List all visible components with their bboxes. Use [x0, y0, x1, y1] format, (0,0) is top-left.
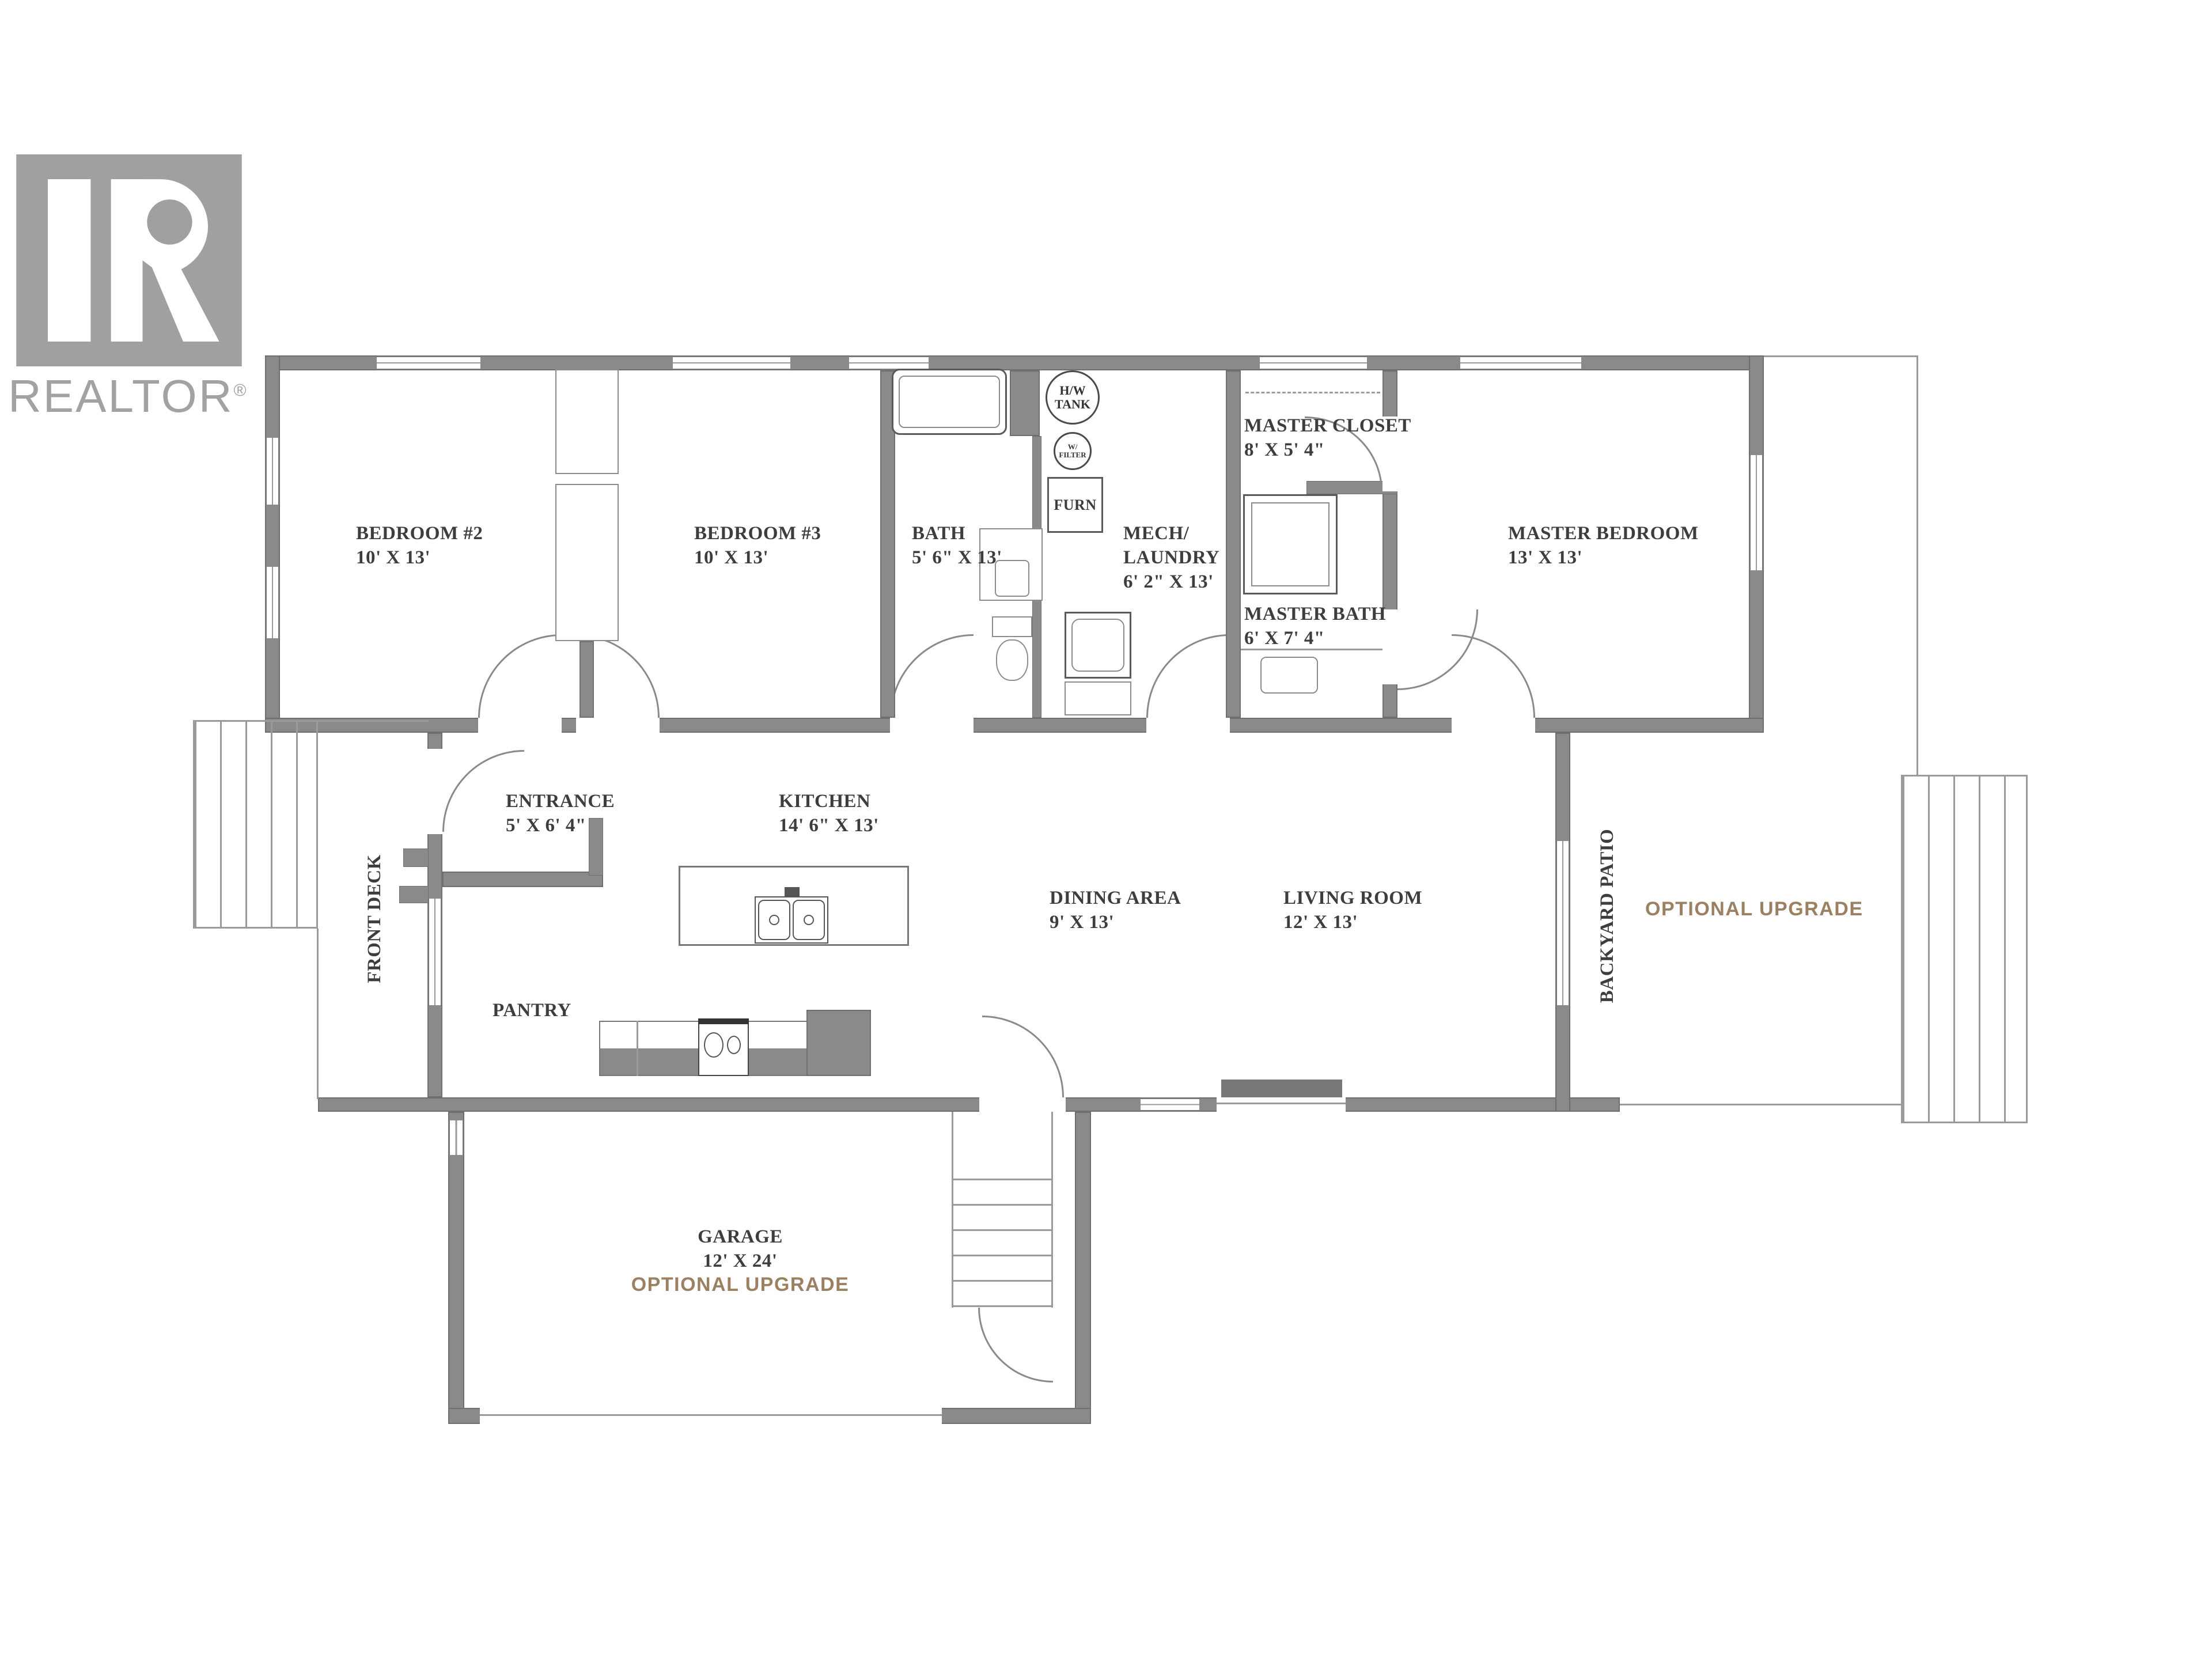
living-dims: 12' X 13': [1283, 910, 1422, 934]
garage-door-gap: [480, 1408, 942, 1424]
wall-garage-right: [1075, 1112, 1091, 1424]
mech-name2: LAUNDRY: [1123, 546, 1219, 570]
door-gap-entrance: [427, 749, 442, 834]
patio-roofline-top: [1764, 355, 1918, 357]
entrance-name: ENTRANCE: [506, 789, 615, 813]
sink-drain-left: [769, 915, 779, 925]
window-bedroom2-left-1: [265, 438, 280, 505]
garage-name: GARAGE: [625, 1225, 855, 1249]
laundry-unit: [1065, 681, 1131, 715]
hot-water-tank: H/W TANK: [1046, 370, 1100, 425]
garage-door-line: [480, 1414, 942, 1416]
realtor-logo: [16, 154, 242, 366]
door-gap-mech: [1146, 718, 1230, 733]
kitchen-dims: 14' 6" X 13': [779, 813, 879, 838]
label-kitchen: KITCHEN 14' 6" X 13': [779, 789, 879, 838]
window-master-closet: [1260, 355, 1367, 370]
window-master-right: [1749, 455, 1764, 570]
label-master-bedroom: MASTER BEDROOM 13' X 13': [1508, 521, 1699, 570]
wall-left-upper: [265, 355, 280, 733]
dining-dims: 9' X 13': [1050, 910, 1181, 934]
door-arc-bedroom2: [478, 634, 562, 718]
filter-label1: W/: [1068, 443, 1078, 451]
deck-post-2: [399, 886, 429, 903]
filter-label2: FILTER: [1059, 451, 1086, 459]
water-filter: W/ FILTER: [1054, 432, 1092, 470]
deck-edge-vertical: [317, 929, 319, 1099]
bedroom3-name: BEDROOM #3: [694, 521, 821, 546]
stove-burner-small: [727, 1036, 741, 1054]
door-gap-bedroom2: [478, 718, 562, 733]
garage-stairs: [952, 1179, 1053, 1308]
patio-steps: [1901, 775, 2028, 1123]
door-gap-master: [1452, 718, 1535, 733]
label-garage: GARAGE 12' X 24': [625, 1225, 855, 1273]
window-bedroom2: [377, 355, 480, 370]
garage-dims: 12' X 24': [625, 1249, 855, 1273]
fridge: [806, 1010, 871, 1076]
bedroom2-dims: 10' X 13': [356, 546, 483, 570]
bedroom3-dims: 10' X 13': [694, 546, 821, 570]
label-pantry: PANTRY: [493, 998, 571, 1022]
entrance-dims: 5' X 6' 4": [506, 813, 615, 838]
window-dining: [1141, 1097, 1199, 1112]
label-master-closet: MASTER CLOSET 8' X 5' 4": [1244, 414, 1411, 462]
door-arc-garage-entry: [982, 1016, 1064, 1097]
note-garage-upgrade: OPTIONAL UPGRADE: [625, 1273, 855, 1296]
realtor-r-icon: [16, 154, 242, 366]
wall-closet-stub: [579, 641, 594, 718]
stove-back-panel: [698, 1018, 749, 1024]
bedroom2-name: BEDROOM #2: [356, 521, 483, 546]
bathtub-inner: [899, 376, 1000, 428]
deck-steps: [193, 720, 318, 929]
patio-door-track: [1217, 1103, 1346, 1104]
garage-entry-gap: [979, 1097, 1066, 1112]
dining-name: DINING AREA: [1050, 886, 1181, 910]
label-mech-laundry: MECH/ LAUNDRY 6' 2" X 13': [1123, 521, 1219, 594]
kitchen-name: KITCHEN: [779, 789, 879, 813]
wall-entrance-partition: [442, 872, 603, 887]
shower-inner: [1251, 502, 1330, 586]
closet-bedroom3: [555, 484, 619, 641]
closet-bedroom2: [555, 369, 619, 474]
furnace-label: FURN: [1054, 493, 1096, 517]
label-living-room: LIVING ROOM 12' X 13': [1283, 886, 1422, 934]
label-bedroom3: BEDROOM #3 10' X 13': [694, 521, 821, 570]
stove-burner-large: [704, 1032, 724, 1058]
label-bath: BATH 5' 6" X 13': [912, 521, 1002, 570]
label-bedroom2: BEDROOM #2 10' X 13': [356, 521, 483, 570]
master-closet-dims: 8' X 5' 4": [1244, 438, 1411, 462]
window-entrance-left: [427, 899, 442, 1005]
master-bedroom-name: MASTER BEDROOM: [1508, 521, 1699, 546]
hw-tank-label2: TANK: [1055, 397, 1090, 411]
living-name: LIVING ROOM: [1283, 886, 1422, 910]
mech-dims: 6' 2" X 13': [1123, 570, 1219, 594]
patio-door-gap: [1217, 1097, 1346, 1112]
master-bath-name: MASTER BATH: [1244, 602, 1386, 626]
toilet-bowl: [996, 639, 1028, 681]
door-arc-mech: [1146, 634, 1230, 718]
wall-mech-right: [1226, 370, 1241, 718]
door-gap-bath: [890, 718, 974, 733]
window-bedroom3: [673, 355, 790, 370]
patio-edge-bottom: [1620, 1104, 1903, 1105]
window-master-bedroom: [1460, 355, 1581, 370]
toilet-tank: [992, 616, 1032, 637]
wall-bottom-main: [318, 1097, 1620, 1112]
label-backyard-patio: BACKYARD PATIO: [1597, 829, 1618, 1003]
window-garage-left: [448, 1120, 464, 1155]
registered-mark: ®: [233, 381, 248, 400]
sink-drain-right: [804, 915, 814, 925]
patio-roofline-right: [1916, 355, 1918, 777]
door-gap-bedroom3: [576, 718, 660, 733]
door-arc-bath: [890, 634, 974, 718]
bath-dims: 5' 6" X 13': [912, 546, 1002, 570]
furnace: FURN: [1047, 477, 1103, 533]
label-dining-area: DINING AREA 9' X 13': [1050, 886, 1181, 934]
master-bath-dims: 6' X 7' 4": [1244, 626, 1386, 650]
patio-door-panel: [1221, 1080, 1342, 1097]
door-arc-garage-stairs: [978, 1308, 1053, 1382]
deck-edge-top: [318, 720, 429, 722]
hw-tank-label1: H/W: [1059, 384, 1085, 397]
window-living-right: [1555, 841, 1570, 1005]
closet-rod: [1245, 392, 1380, 393]
label-master-bath: MASTER BATH 6' X 7' 4": [1244, 602, 1386, 650]
window-bedroom2-left-2: [265, 567, 280, 638]
master-closet-name: MASTER CLOSET: [1244, 414, 1411, 438]
realtor-wordmark: REALTOR®: [8, 370, 248, 423]
washer-inner: [1071, 619, 1124, 672]
deck-post-1: [403, 849, 429, 867]
wall-garage-left: [448, 1112, 464, 1424]
master-sink: [1260, 657, 1318, 694]
master-bedroom-dims: 13' X 13': [1508, 546, 1699, 570]
bath-name: BATH: [912, 521, 1002, 546]
note-patio-upgrade: OPTIONAL UPGRADE: [1645, 897, 1863, 921]
label-front-deck: FRONT DECK: [364, 854, 385, 983]
counter-divider: [637, 1021, 638, 1076]
label-entrance: ENTRANCE 5' X 6' 4": [506, 789, 615, 838]
mech-name1: MECH/: [1123, 521, 1219, 546]
wall-bath-right-stub: [1010, 370, 1040, 436]
sink-faucet: [785, 887, 800, 896]
